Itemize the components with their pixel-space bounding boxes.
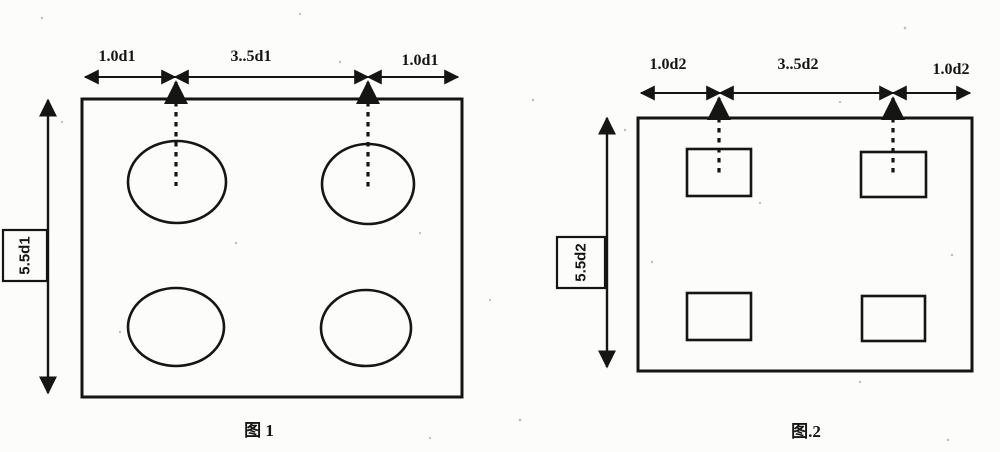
- fig2-pad-rect-bottom-left: [687, 293, 751, 340]
- fig1-caption: 图 1: [244, 421, 274, 440]
- fig1-pad-ellipse-bottom-right: [321, 290, 411, 366]
- fig1-dim-label-right: 1.0d1: [402, 52, 439, 69]
- scan-noise: [41, 13, 953, 452]
- fig1-pad-ellipse-bottom-left: [128, 288, 224, 366]
- fig1-dim-label-left: 1.0d1: [99, 48, 136, 65]
- diagram-canvas: 1.0d1 3..5d1 1.0d1 5.5d1 图 1 1.0d2 3..5d…: [0, 0, 1000, 452]
- patent-drawing-sheet: 1.0d1 3..5d1 1.0d1 5.5d1 图 1 1.0d2 3..5d…: [0, 0, 1000, 452]
- fig2-dim-label-middle: 3..5d2: [778, 56, 819, 73]
- fig2-dim-label-right: 1.0d2: [933, 61, 970, 78]
- fig2-pad-rect-bottom-right: [862, 296, 925, 341]
- fig2-dim-label-left: 1.0d2: [650, 56, 687, 73]
- fig1-dim-label-middle: 3..5d1: [231, 48, 272, 65]
- fig2-side-dim-label: 5.5d2: [573, 243, 590, 281]
- fig2-caption: 图.2: [791, 422, 821, 441]
- figure2: 1.0d2 3..5d2 1.0d2 5.5d2 图.2: [557, 56, 972, 441]
- fig1-side-dim-label: 5.5d1: [17, 236, 34, 274]
- figure1: 1.0d1 3..5d1 1.0d1 5.5d1 图 1: [3, 48, 462, 440]
